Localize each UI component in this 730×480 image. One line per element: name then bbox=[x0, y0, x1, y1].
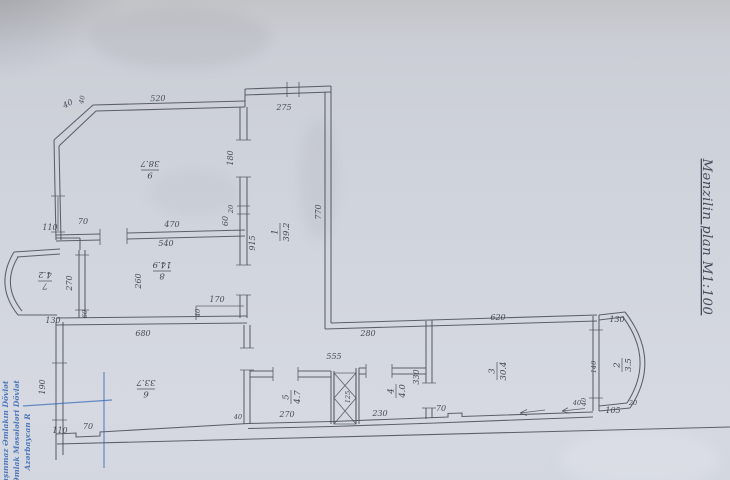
wall bbox=[56, 238, 80, 250]
wall bbox=[56, 230, 245, 235]
dim-140: 140 bbox=[590, 361, 598, 373]
dim-chamfer-40b: 40 bbox=[77, 95, 86, 106]
room-number: 4 bbox=[387, 388, 397, 394]
wall bbox=[96, 107, 245, 111]
door-jambs bbox=[366, 364, 392, 378]
room-area: 14.9 bbox=[152, 259, 172, 269]
dim-130b: 130 bbox=[609, 315, 624, 324]
dim-20b: 20 bbox=[628, 399, 637, 407]
wall bbox=[14, 249, 60, 252]
wall bbox=[17, 254, 60, 257]
dim-230: 230 bbox=[371, 409, 387, 418]
dim-70b: 70 bbox=[83, 422, 93, 431]
room-number: 7 bbox=[42, 281, 48, 291]
room-label-4: 4 4.0 bbox=[387, 384, 409, 399]
room-number: 6 bbox=[143, 389, 149, 399]
stamp-line-1: Daşınmaz Əmlakın Dövlət bbox=[1, 380, 10, 480]
dimension-labels: 40 40 520 275 770 915 180 20 110 70 470 … bbox=[38, 94, 637, 435]
wall bbox=[331, 371, 334, 424]
outer-boundary-line bbox=[57, 427, 730, 444]
room-area: 30.4 bbox=[499, 362, 509, 381]
room-area: 33.7 bbox=[136, 377, 156, 387]
window-ticks bbox=[287, 82, 299, 97]
room-label-8: 8 14.9 bbox=[152, 259, 172, 281]
door-jambs bbox=[273, 367, 298, 381]
plan-title: Mənzilin plan M1:100 bbox=[699, 158, 714, 316]
room-number: 5 bbox=[282, 394, 292, 399]
window-wall bbox=[79, 250, 85, 318]
room-number: 2 bbox=[613, 362, 623, 368]
dim-270-window: 270 bbox=[65, 275, 74, 291]
dim-105: 105 bbox=[605, 406, 620, 415]
dim-330: 330 bbox=[412, 369, 421, 384]
door-jambs bbox=[240, 348, 254, 370]
room-label-7: 7 4.2 bbox=[38, 269, 53, 291]
room-number: 3 bbox=[488, 368, 498, 373]
stamp-line-3: Azərbaycan R bbox=[23, 414, 32, 472]
wall bbox=[245, 86, 331, 89]
dim-40d: 40 bbox=[580, 398, 588, 407]
dim-130: 130 bbox=[45, 316, 60, 325]
dim-680: 680 bbox=[135, 329, 150, 338]
partition-walls bbox=[56, 107, 436, 424]
wall-step bbox=[196, 306, 244, 320]
dim-260: 260 bbox=[134, 273, 143, 289]
dim-60b: 60 bbox=[81, 310, 89, 318]
room-area: 3.5 bbox=[624, 358, 634, 372]
room-area: 4.0 bbox=[398, 384, 408, 399]
room-label-1: 1 39.2 bbox=[271, 223, 293, 242]
dim-540: 540 bbox=[158, 239, 173, 248]
floorplan-drawing: 1 39.2 2 3.5 3 30.4 4 4.0 5 bbox=[0, 0, 730, 480]
dim-620: 620 bbox=[490, 313, 505, 322]
room-area: 39.2 bbox=[282, 223, 292, 242]
wall bbox=[93, 101, 245, 105]
wall bbox=[59, 146, 61, 240]
dim-20: 20 bbox=[227, 205, 235, 214]
wall-ticks bbox=[237, 206, 250, 214]
room-area: 4.7 bbox=[293, 390, 303, 405]
dim-275: 275 bbox=[275, 103, 291, 112]
stamp-line-2: Əmlak Məsələləri Dövlət bbox=[12, 380, 21, 480]
wall bbox=[248, 412, 593, 424]
wall bbox=[56, 236, 245, 241]
room-label-9: 9 38.7 bbox=[140, 158, 160, 180]
room-number: 9 bbox=[147, 170, 153, 180]
room-number: 1 bbox=[271, 229, 281, 234]
floorplan-photo: 1 39.2 2 3.5 3 30.4 4 4.0 5 bbox=[0, 0, 730, 480]
dim-70: 70 bbox=[78, 217, 88, 226]
dim-110: 110 bbox=[42, 223, 57, 232]
room-number: 8 bbox=[159, 271, 165, 281]
door-jambs bbox=[422, 383, 436, 408]
dim-470: 470 bbox=[163, 220, 179, 229]
wall bbox=[56, 323, 247, 325]
dim-770: 770 bbox=[314, 204, 323, 219]
room-labels: 1 39.2 2 3.5 3 30.4 4 4.0 5 bbox=[38, 158, 634, 405]
dim-110b: 110 bbox=[52, 426, 67, 435]
wall bbox=[245, 92, 331, 95]
dim-915: 915 bbox=[248, 235, 257, 250]
room-label-3: 3 30.4 bbox=[488, 362, 510, 381]
dim-60: 60 bbox=[221, 216, 230, 226]
dim-280: 280 bbox=[359, 329, 375, 338]
door-jambs bbox=[236, 140, 251, 295]
dim-40b: 40 bbox=[233, 413, 242, 421]
wall bbox=[356, 368, 359, 424]
room-label-6: 6 33.7 bbox=[136, 377, 156, 399]
dim-chamfer-40a: 40 bbox=[60, 97, 74, 110]
room-area: 38.7 bbox=[140, 158, 160, 168]
pen-mark-horizontal bbox=[23, 400, 112, 406]
dim-70c: 70 bbox=[436, 404, 446, 413]
dim-190: 190 bbox=[38, 379, 47, 394]
bow-arc bbox=[10, 257, 22, 311]
room-label-2: 2 3.5 bbox=[613, 358, 635, 372]
window-ticks bbox=[75, 255, 89, 310]
wall bbox=[54, 105, 93, 140]
wall bbox=[59, 111, 96, 146]
door-jambs bbox=[100, 228, 127, 245]
window-ticks bbox=[52, 363, 67, 420]
room-label-5: 5 4.7 bbox=[282, 390, 304, 405]
dim-520: 520 bbox=[150, 94, 166, 104]
dim-125: 125 bbox=[344, 391, 352, 403]
room-area: 4.2 bbox=[38, 269, 53, 279]
dim-180: 180 bbox=[226, 150, 235, 165]
dim-270: 270 bbox=[278, 410, 294, 419]
dim-170: 170 bbox=[209, 295, 224, 304]
dim-555: 555 bbox=[326, 352, 341, 361]
dim-40-step: 40 bbox=[194, 309, 202, 318]
